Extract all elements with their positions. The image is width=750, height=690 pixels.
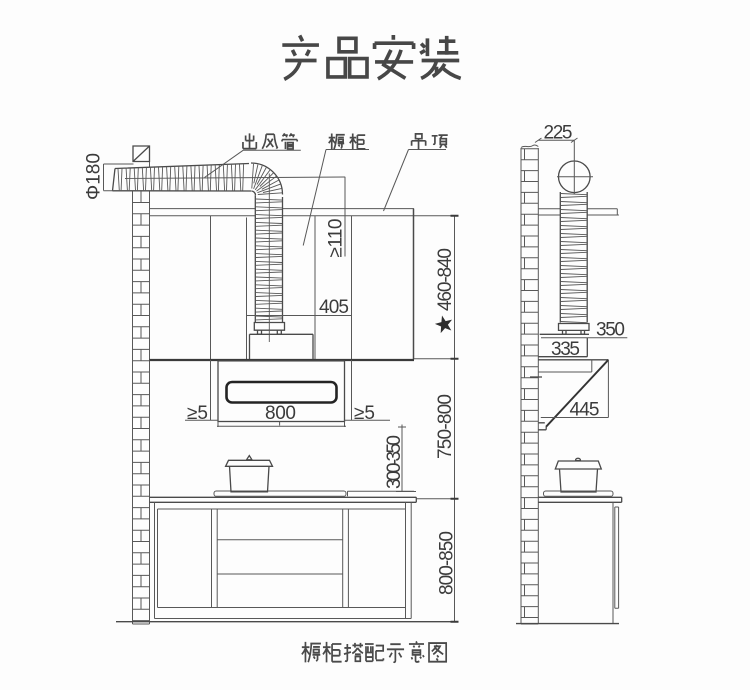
- svg-text:445: 445: [570, 400, 600, 421]
- svg-text:335: 335: [551, 339, 580, 360]
- svg-text:≥5: ≥5: [354, 403, 375, 424]
- svg-text:460-840: 460-840: [435, 248, 456, 311]
- svg-text:Φ180: Φ180: [83, 153, 104, 200]
- svg-text:405: 405: [319, 297, 349, 318]
- svg-text:≥5: ≥5: [187, 403, 208, 424]
- svg-text:800: 800: [265, 403, 296, 424]
- svg-text:750-800: 750-800: [435, 394, 456, 459]
- svg-text:225: 225: [544, 123, 573, 144]
- svg-text:≥110: ≥110: [326, 219, 347, 258]
- svg-text:800-850: 800-850: [437, 531, 458, 595]
- svg-text:300-350: 300-350: [384, 435, 405, 489]
- svg-text:350: 350: [596, 320, 625, 341]
